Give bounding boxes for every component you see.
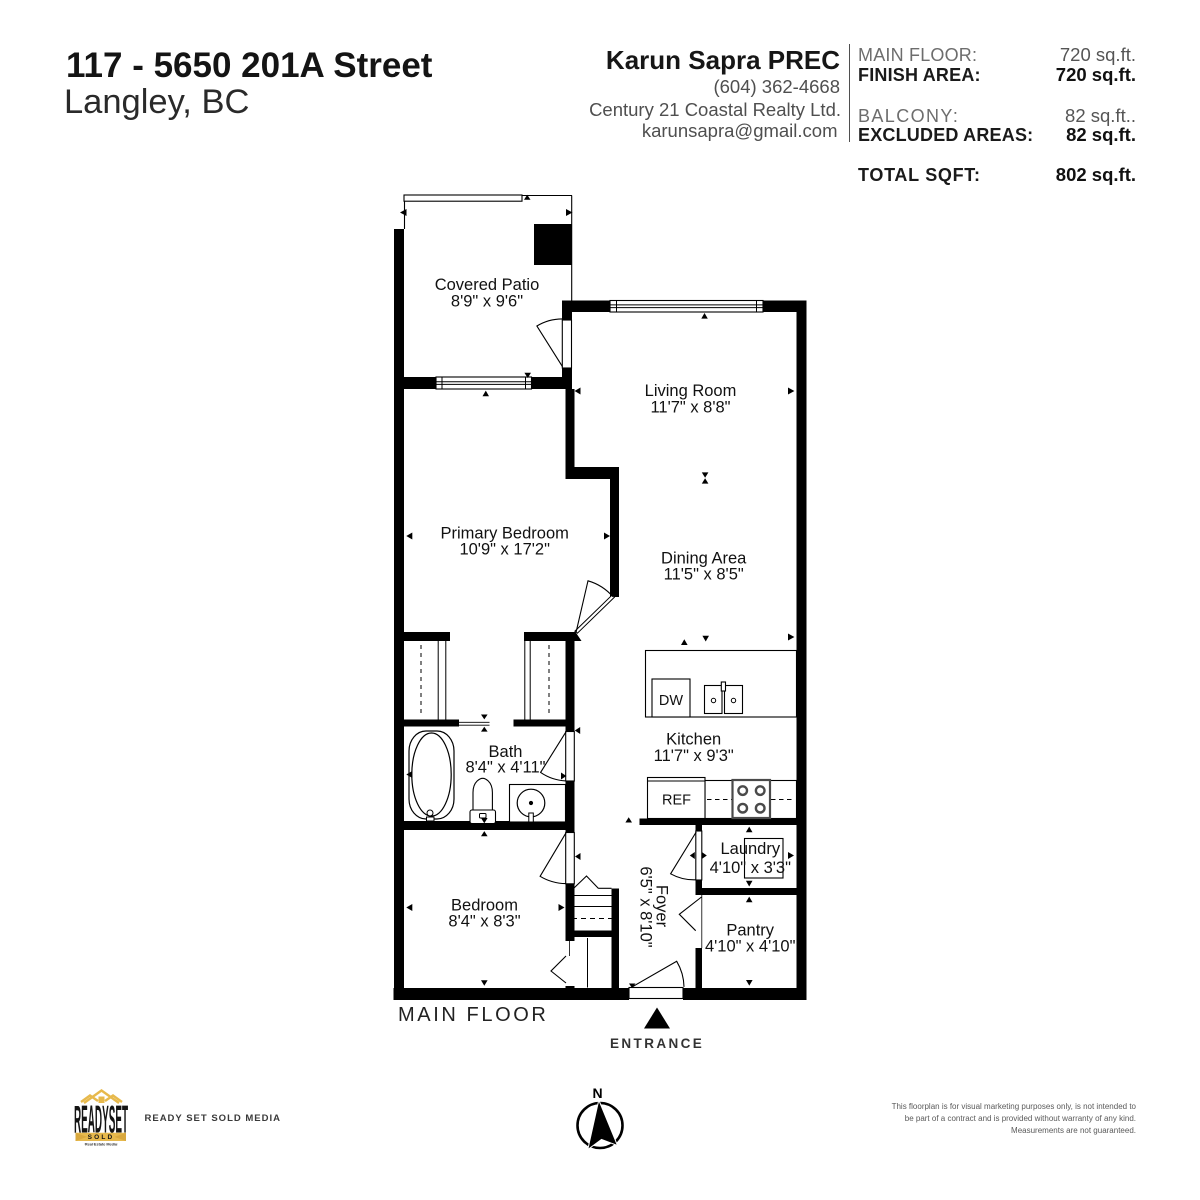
svg-text:11'7" x 8'8": 11'7" x 8'8" bbox=[650, 399, 730, 417]
svg-text:8'9" x 9'6": 8'9" x 9'6" bbox=[451, 293, 523, 311]
svg-text:11'5" x 8'5": 11'5" x 8'5" bbox=[664, 566, 744, 584]
svg-text:N: N bbox=[592, 1085, 602, 1101]
svg-text:Real Estate Media: Real Estate Media bbox=[85, 1143, 118, 1147]
svg-text:4'10" x 3'3": 4'10" x 3'3" bbox=[710, 859, 791, 877]
svg-text:DW: DW bbox=[659, 693, 683, 709]
svg-text:4'10" x 4'10": 4'10" x 4'10" bbox=[705, 937, 796, 955]
svg-text:Laundry: Laundry bbox=[720, 840, 780, 858]
svg-text:6'5" x 8'10": 6'5" x 8'10" bbox=[637, 866, 655, 947]
svg-text:SOLD: SOLD bbox=[88, 1134, 115, 1141]
svg-text:8'4" x 4'11": 8'4" x 4'11" bbox=[465, 759, 545, 777]
svg-text:10'9" x 17'2": 10'9" x 17'2" bbox=[459, 541, 550, 559]
svg-text:8'4" x 8'3": 8'4" x 8'3" bbox=[448, 912, 520, 930]
svg-text:11'7" x 9'3": 11'7" x 9'3" bbox=[654, 747, 734, 765]
svg-text:Living Room: Living Room bbox=[645, 382, 737, 400]
svg-text:REF: REF bbox=[662, 793, 691, 809]
svg-text:Covered Patio: Covered Patio bbox=[435, 276, 540, 294]
svg-text:Kitchen: Kitchen bbox=[666, 731, 721, 749]
